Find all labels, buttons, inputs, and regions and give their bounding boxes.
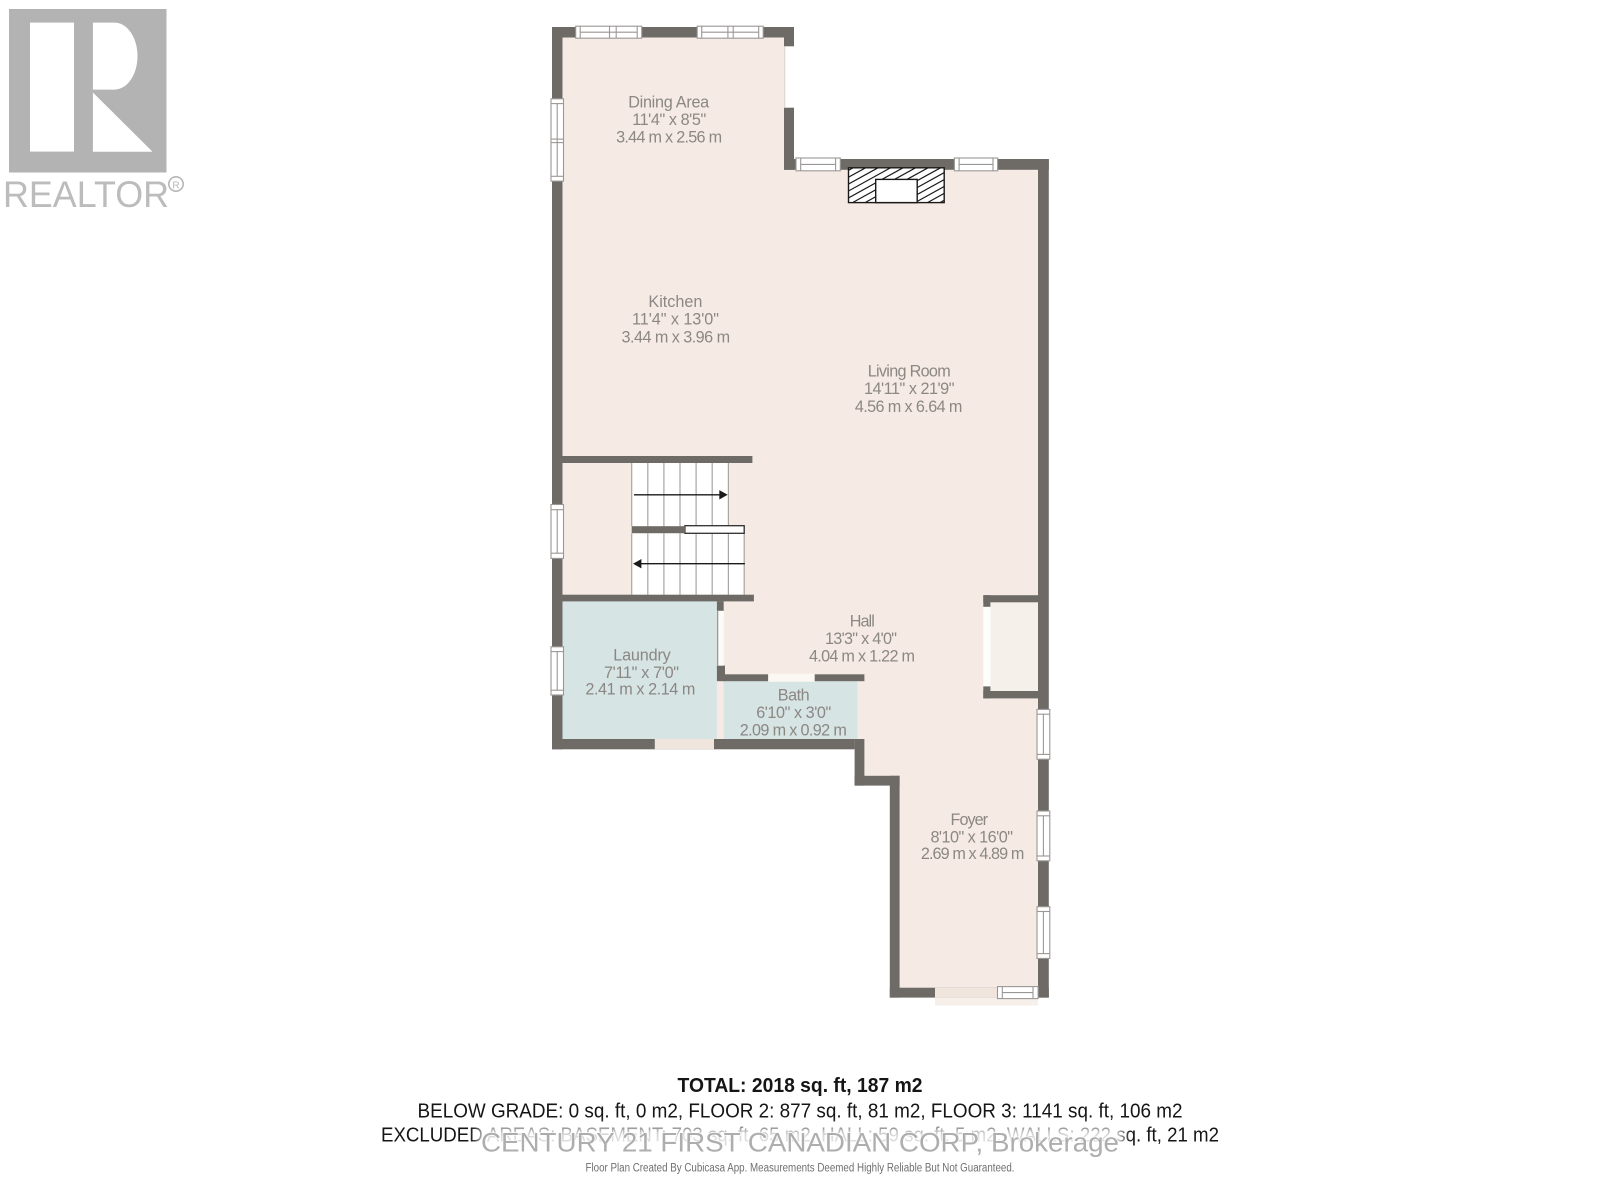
svg-text:REALTOR: REALTOR [3, 173, 169, 215]
svg-text:BELOW GRADE: 0 sq. ft, 0 m2, F: BELOW GRADE: 0 sq. ft, 0 m2, FLOOR 2: 87… [418, 1101, 1183, 1123]
svg-text:Laundry: Laundry [613, 646, 671, 664]
svg-text:R: R [172, 181, 179, 192]
svg-text:8'10" x 16'0": 8'10" x 16'0" [930, 828, 1013, 846]
svg-text:TOTAL: 2018 sq. ft, 187 m2: TOTAL: 2018 sq. ft, 187 m2 [678, 1075, 923, 1097]
svg-text:Dining Area: Dining Area [628, 94, 709, 112]
svg-text:Floor Plan Created By Cubicasa: Floor Plan Created By Cubicasa App. Meas… [586, 1163, 1015, 1175]
svg-text:3.44 m x 3.96 m: 3.44 m x 3.96 m [622, 329, 731, 347]
svg-text:2.41 m x 2.14 m: 2.41 m x 2.14 m [585, 681, 695, 699]
svg-text:7'11" x 7'0": 7'11" x 7'0" [604, 664, 679, 682]
svg-text:6'10" x 3'0": 6'10" x 3'0" [756, 704, 831, 722]
svg-text:Living Room: Living Room [868, 362, 951, 380]
svg-text:14'11" x 21'9": 14'11" x 21'9" [864, 380, 955, 398]
svg-text:4.04 m x 1.22 m: 4.04 m x 1.22 m [809, 647, 915, 665]
svg-text:13'3" x 4'0": 13'3" x 4'0" [825, 630, 897, 648]
svg-text:4.56 m x 6.64 m: 4.56 m x 6.64 m [855, 398, 963, 416]
svg-text:11'4" x 13'0": 11'4" x 13'0" [632, 311, 719, 329]
svg-text:Kitchen: Kitchen [648, 293, 702, 311]
svg-text:Foyer: Foyer [951, 811, 989, 829]
svg-text:CENTURY 21 FIRST CANADIAN CORP: CENTURY 21 FIRST CANADIAN CORP, Brokerag… [481, 1128, 1119, 1158]
svg-text:11'4" x 8'5": 11'4" x 8'5" [632, 111, 706, 129]
svg-text:2.69 m x 4.89 m: 2.69 m x 4.89 m [921, 845, 1025, 863]
svg-text:Hall: Hall [850, 613, 875, 631]
svg-text:2.09 m x 0.92 m: 2.09 m x 0.92 m [740, 722, 847, 740]
svg-text:Bath: Bath [778, 687, 810, 705]
svg-text:3.44 m x 2.56 m: 3.44 m x 2.56 m [616, 129, 722, 147]
